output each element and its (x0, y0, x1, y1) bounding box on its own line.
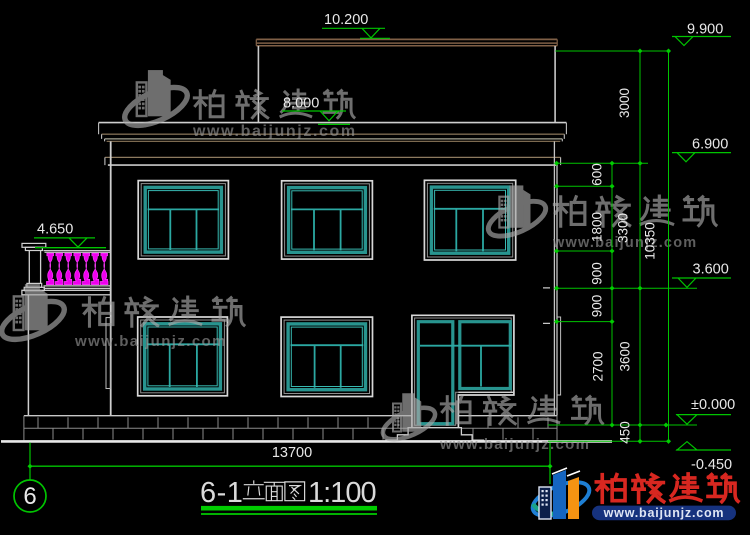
svg-text:9.900: 9.900 (687, 22, 723, 38)
svg-text:1:100: 1:100 (308, 477, 376, 509)
svg-text:4.650: 4.650 (37, 222, 73, 238)
svg-text:www.baijunjz.com: www.baijunjz.com (439, 436, 590, 453)
svg-text:900: 900 (590, 295, 605, 318)
svg-text:3600: 3600 (618, 341, 633, 371)
svg-text:2700: 2700 (591, 351, 606, 381)
svg-text:900: 900 (590, 262, 605, 285)
svg-text:6.900: 6.900 (692, 137, 728, 153)
svg-text:13700: 13700 (272, 445, 312, 461)
svg-text:www.baijunjz.com: www.baijunjz.com (192, 123, 357, 140)
svg-text:600: 600 (590, 163, 605, 186)
svg-text:3000: 3000 (617, 88, 632, 118)
svg-text:3300: 3300 (616, 213, 631, 243)
svg-text:±0.000: ±0.000 (691, 397, 735, 413)
svg-text:10.200: 10.200 (324, 12, 368, 28)
svg-text:3.600: 3.600 (693, 262, 729, 278)
svg-text:www.baijunjz.com: www.baijunjz.com (74, 333, 227, 350)
svg-text:6: 6 (23, 483, 36, 510)
svg-text:www.baijunjz.com: www.baijunjz.com (603, 506, 725, 520)
svg-text:-0.450: -0.450 (691, 457, 732, 473)
svg-text:6-1: 6-1 (200, 477, 243, 509)
svg-text:8.000: 8.000 (283, 96, 319, 112)
svg-text:10350: 10350 (643, 222, 658, 260)
svg-text:450: 450 (618, 421, 633, 444)
svg-text:1800: 1800 (590, 212, 605, 242)
